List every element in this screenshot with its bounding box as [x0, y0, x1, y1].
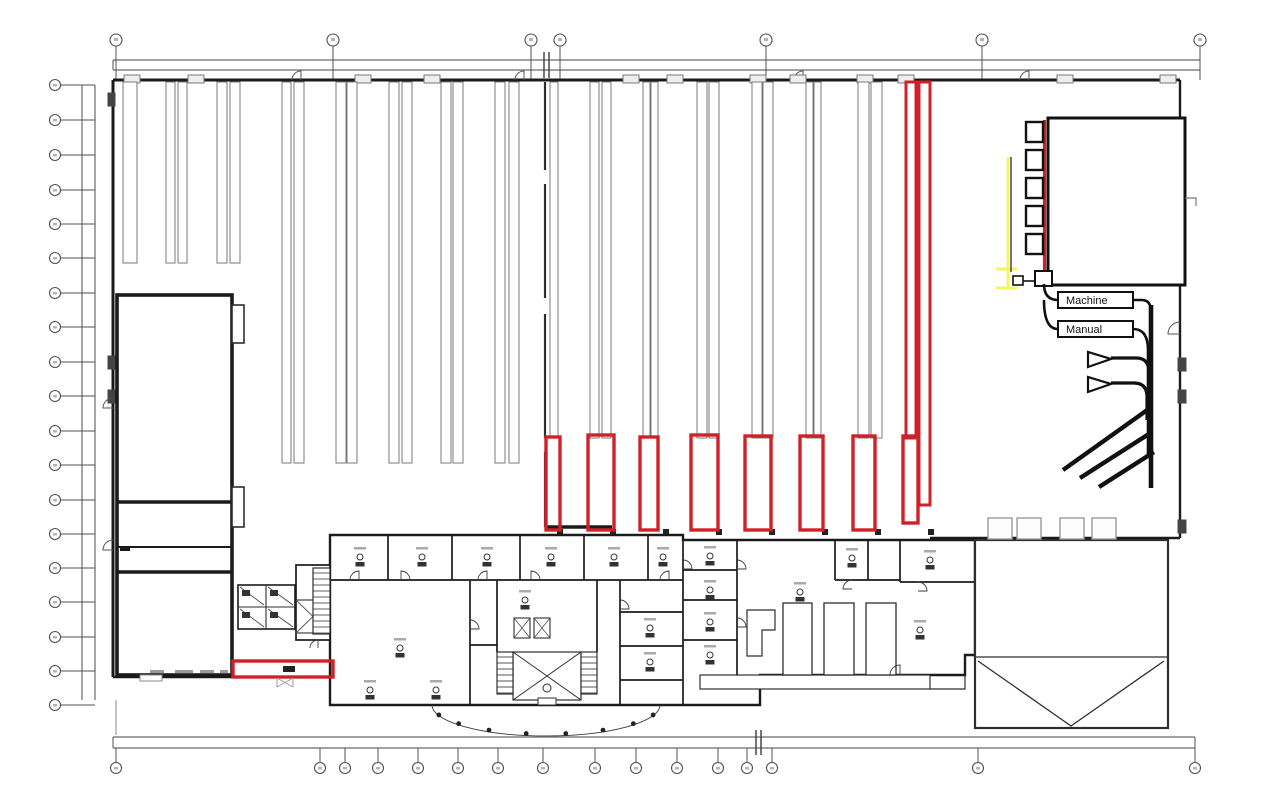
- grid-bubble-mark: [53, 119, 57, 122]
- entrance-lobby: [513, 652, 581, 705]
- grid-bubble-mark: [675, 767, 679, 770]
- aisle-strip: [602, 82, 611, 438]
- aisle-strip: [590, 82, 599, 438]
- grid-bubble-mark: [764, 38, 768, 41]
- aisle-strip: [709, 82, 719, 438]
- stair-hatch: [497, 652, 513, 694]
- grid-bubble-mark: [745, 767, 749, 770]
- aisle-strip: [763, 82, 773, 438]
- elevator-cell: [514, 618, 530, 638]
- desk-mark: [418, 562, 427, 567]
- office-wing: [238, 535, 975, 736]
- grid-bubble-mark: [53, 326, 57, 329]
- grid-bubble-mark: [53, 189, 57, 192]
- hall-table: [783, 603, 812, 675]
- aisle-strip: [509, 82, 519, 463]
- desk-mark: [432, 695, 441, 700]
- desk-mark: [926, 565, 935, 570]
- room-label-mark: [394, 638, 406, 641]
- aisle-strip: [643, 82, 650, 438]
- desk-mark: [706, 561, 715, 566]
- aisle-strip: [123, 82, 137, 263]
- stair-outline: [497, 652, 513, 694]
- storage-block: [117, 295, 244, 681]
- desk-mark: [659, 562, 668, 567]
- grid-bubble-mark: [318, 767, 322, 770]
- grid-bubble-mark: [53, 154, 57, 157]
- block-annex: [232, 487, 244, 527]
- aisle-strip: [697, 82, 707, 438]
- aisle-strip: [294, 82, 304, 463]
- grid-bubble-mark: [53, 601, 57, 604]
- room-label-mark: [704, 645, 716, 648]
- canopy-dot: [651, 713, 656, 718]
- machine-cell-square: [1026, 150, 1043, 170]
- room-label-mark: [644, 618, 656, 621]
- room-label-mark: [846, 548, 858, 551]
- dock-door: [1092, 518, 1116, 539]
- aisle-strip: [871, 82, 882, 438]
- desk-mark: [547, 562, 556, 567]
- process-room: [1048, 118, 1185, 285]
- top-wall-door: [623, 75, 639, 83]
- desk-mark: [396, 653, 405, 658]
- aisle-strip: [550, 82, 558, 438]
- desk-mark: [796, 597, 805, 602]
- aisle-strip: [166, 82, 175, 263]
- room-label-mark: [416, 547, 428, 550]
- manual-label: Manual: [1066, 324, 1102, 336]
- grid-bubble-mark: [53, 257, 57, 260]
- grid-bubble-mark: [634, 767, 638, 770]
- grid-bubble-mark: [114, 767, 118, 770]
- grid-bubble-mark: [53, 464, 57, 467]
- south-walkway: [700, 675, 930, 689]
- grid-bubble-mark: [343, 767, 347, 770]
- process-room-door: [1185, 198, 1196, 206]
- grid-bubble-mark: [53, 361, 57, 364]
- room-label-mark: [794, 582, 806, 585]
- desk-mark: [521, 605, 530, 610]
- room-label-mark: [354, 547, 366, 550]
- room-label-mark: [430, 680, 442, 683]
- grid-bubble-mark: [53, 636, 57, 639]
- room-label-mark: [364, 680, 376, 683]
- desk-mark: [483, 562, 492, 567]
- stair-outline: [581, 652, 597, 694]
- truck-yard: [975, 518, 1168, 728]
- machine-label-box: Machine: [1058, 292, 1133, 308]
- aisle-strip: [282, 82, 291, 463]
- desk-mark: [646, 667, 655, 672]
- grid-bubble-mark: [53, 84, 57, 87]
- desk-mark: [366, 695, 375, 700]
- grid-bubble-mark: [593, 767, 597, 770]
- canopy-dot: [601, 728, 606, 733]
- block-annex: [232, 305, 244, 343]
- desk-mark: [706, 660, 715, 665]
- desk-mark: [646, 633, 655, 638]
- grid-bubble-mark: [976, 767, 980, 770]
- top-wall-door: [1160, 75, 1176, 83]
- aisle-strip: [441, 82, 451, 463]
- canopy-dot: [563, 731, 568, 736]
- floor-plan-canvas: Machine Manual: [0, 0, 1280, 801]
- grid-bubble-mark: [53, 567, 57, 570]
- room-label-mark: [657, 547, 669, 550]
- canopy-dot: [487, 728, 492, 733]
- canopy-dot: [524, 731, 529, 736]
- grid-bubble-mark: [53, 430, 57, 433]
- room-label-mark: [481, 547, 493, 550]
- manual-label-box: Manual: [1058, 321, 1133, 337]
- aisle-strip: [230, 82, 240, 263]
- column-mark: [928, 529, 934, 535]
- entrance-canopy: [432, 705, 660, 736]
- grid-bubble-mark: [496, 767, 500, 770]
- desk-mark: [848, 563, 857, 568]
- grid-bubble-mark: [558, 38, 562, 41]
- grid-bubble-mark: [541, 767, 545, 770]
- grid-bubble-mark: [1198, 38, 1202, 41]
- aisle-strip: [814, 82, 821, 438]
- room-label-mark: [608, 547, 620, 550]
- room-label-mark: [519, 590, 531, 593]
- canopy-dot: [436, 713, 441, 718]
- grid-bubble-mark: [53, 223, 57, 226]
- block-door: [140, 675, 162, 681]
- hall-table: [866, 603, 896, 675]
- aisle-strip: [752, 82, 762, 438]
- stair-hatch: [313, 568, 330, 634]
- aisle-strip: [453, 82, 463, 463]
- aisle-strip: [806, 82, 813, 438]
- desk-mark: [916, 635, 925, 640]
- aisle-strip: [178, 82, 187, 263]
- machine-cell-square: [1026, 178, 1043, 198]
- top-wall-door: [790, 75, 806, 83]
- grid-bubble-mark: [53, 533, 57, 536]
- dock-door: [1017, 518, 1041, 539]
- grid-bubble-mark: [53, 292, 57, 295]
- floor-plan-page: Machine Manual: [0, 0, 1280, 801]
- grid-bubble-mark: [456, 767, 460, 770]
- grid-bubble-mark: [529, 38, 533, 41]
- room-label-mark: [545, 547, 557, 550]
- room-label-mark: [704, 580, 716, 583]
- top-wall-door: [667, 75, 683, 83]
- top-wall-door: [1057, 75, 1073, 83]
- aisle-strip: [217, 82, 227, 263]
- stair-hatch: [581, 652, 597, 694]
- desk-mark: [610, 562, 619, 567]
- desk-mark: [706, 595, 715, 600]
- aisle-strip: [347, 82, 357, 463]
- grid-bubble-mark: [376, 767, 380, 770]
- room-label-mark: [644, 652, 656, 655]
- desk-mark: [356, 562, 365, 567]
- room-label-mark: [924, 550, 936, 553]
- aisle-strip: [402, 82, 412, 463]
- grid-bubble-mark: [716, 767, 720, 770]
- desk-mark: [706, 627, 715, 632]
- grid-bubble-mark: [53, 499, 57, 502]
- aisle-strip: [858, 82, 869, 438]
- machine-label: Machine: [1066, 295, 1108, 307]
- top-wall-door: [188, 75, 204, 83]
- aisle-strip: [336, 82, 346, 463]
- aisle-strip: [389, 82, 399, 463]
- grid-bubble-mark: [1193, 767, 1197, 770]
- elevator-cell: [534, 618, 550, 638]
- grid-bubble-mark: [114, 38, 118, 41]
- grid-bubble-mark: [53, 670, 57, 673]
- dock-door: [1060, 518, 1084, 539]
- grid-bubble-mark: [331, 38, 335, 41]
- aisle-strip: [495, 82, 505, 463]
- machine-cell-square: [1026, 206, 1043, 226]
- machine-cell-square: [1026, 234, 1043, 254]
- room-label-mark: [914, 620, 926, 623]
- canopy-dot: [456, 721, 461, 726]
- aisle-strip: [651, 82, 658, 438]
- room-label-mark: [704, 546, 716, 549]
- grid-bubble-mark: [53, 704, 57, 707]
- machine-cell-square: [1026, 122, 1043, 142]
- top-wall-door: [424, 75, 440, 83]
- hall-table: [824, 603, 854, 675]
- canopy-dot: [631, 721, 636, 726]
- dock-door: [988, 518, 1012, 539]
- grid-bubble-mark: [770, 767, 774, 770]
- stair-outline: [313, 568, 330, 634]
- gate-symbol: [277, 678, 293, 687]
- room-label-mark: [704, 612, 716, 615]
- grid-bubble-mark: [53, 395, 57, 398]
- hall-tables: [783, 603, 896, 675]
- grid-bubble-mark: [416, 767, 420, 770]
- grid-bubble-mark: [980, 38, 984, 41]
